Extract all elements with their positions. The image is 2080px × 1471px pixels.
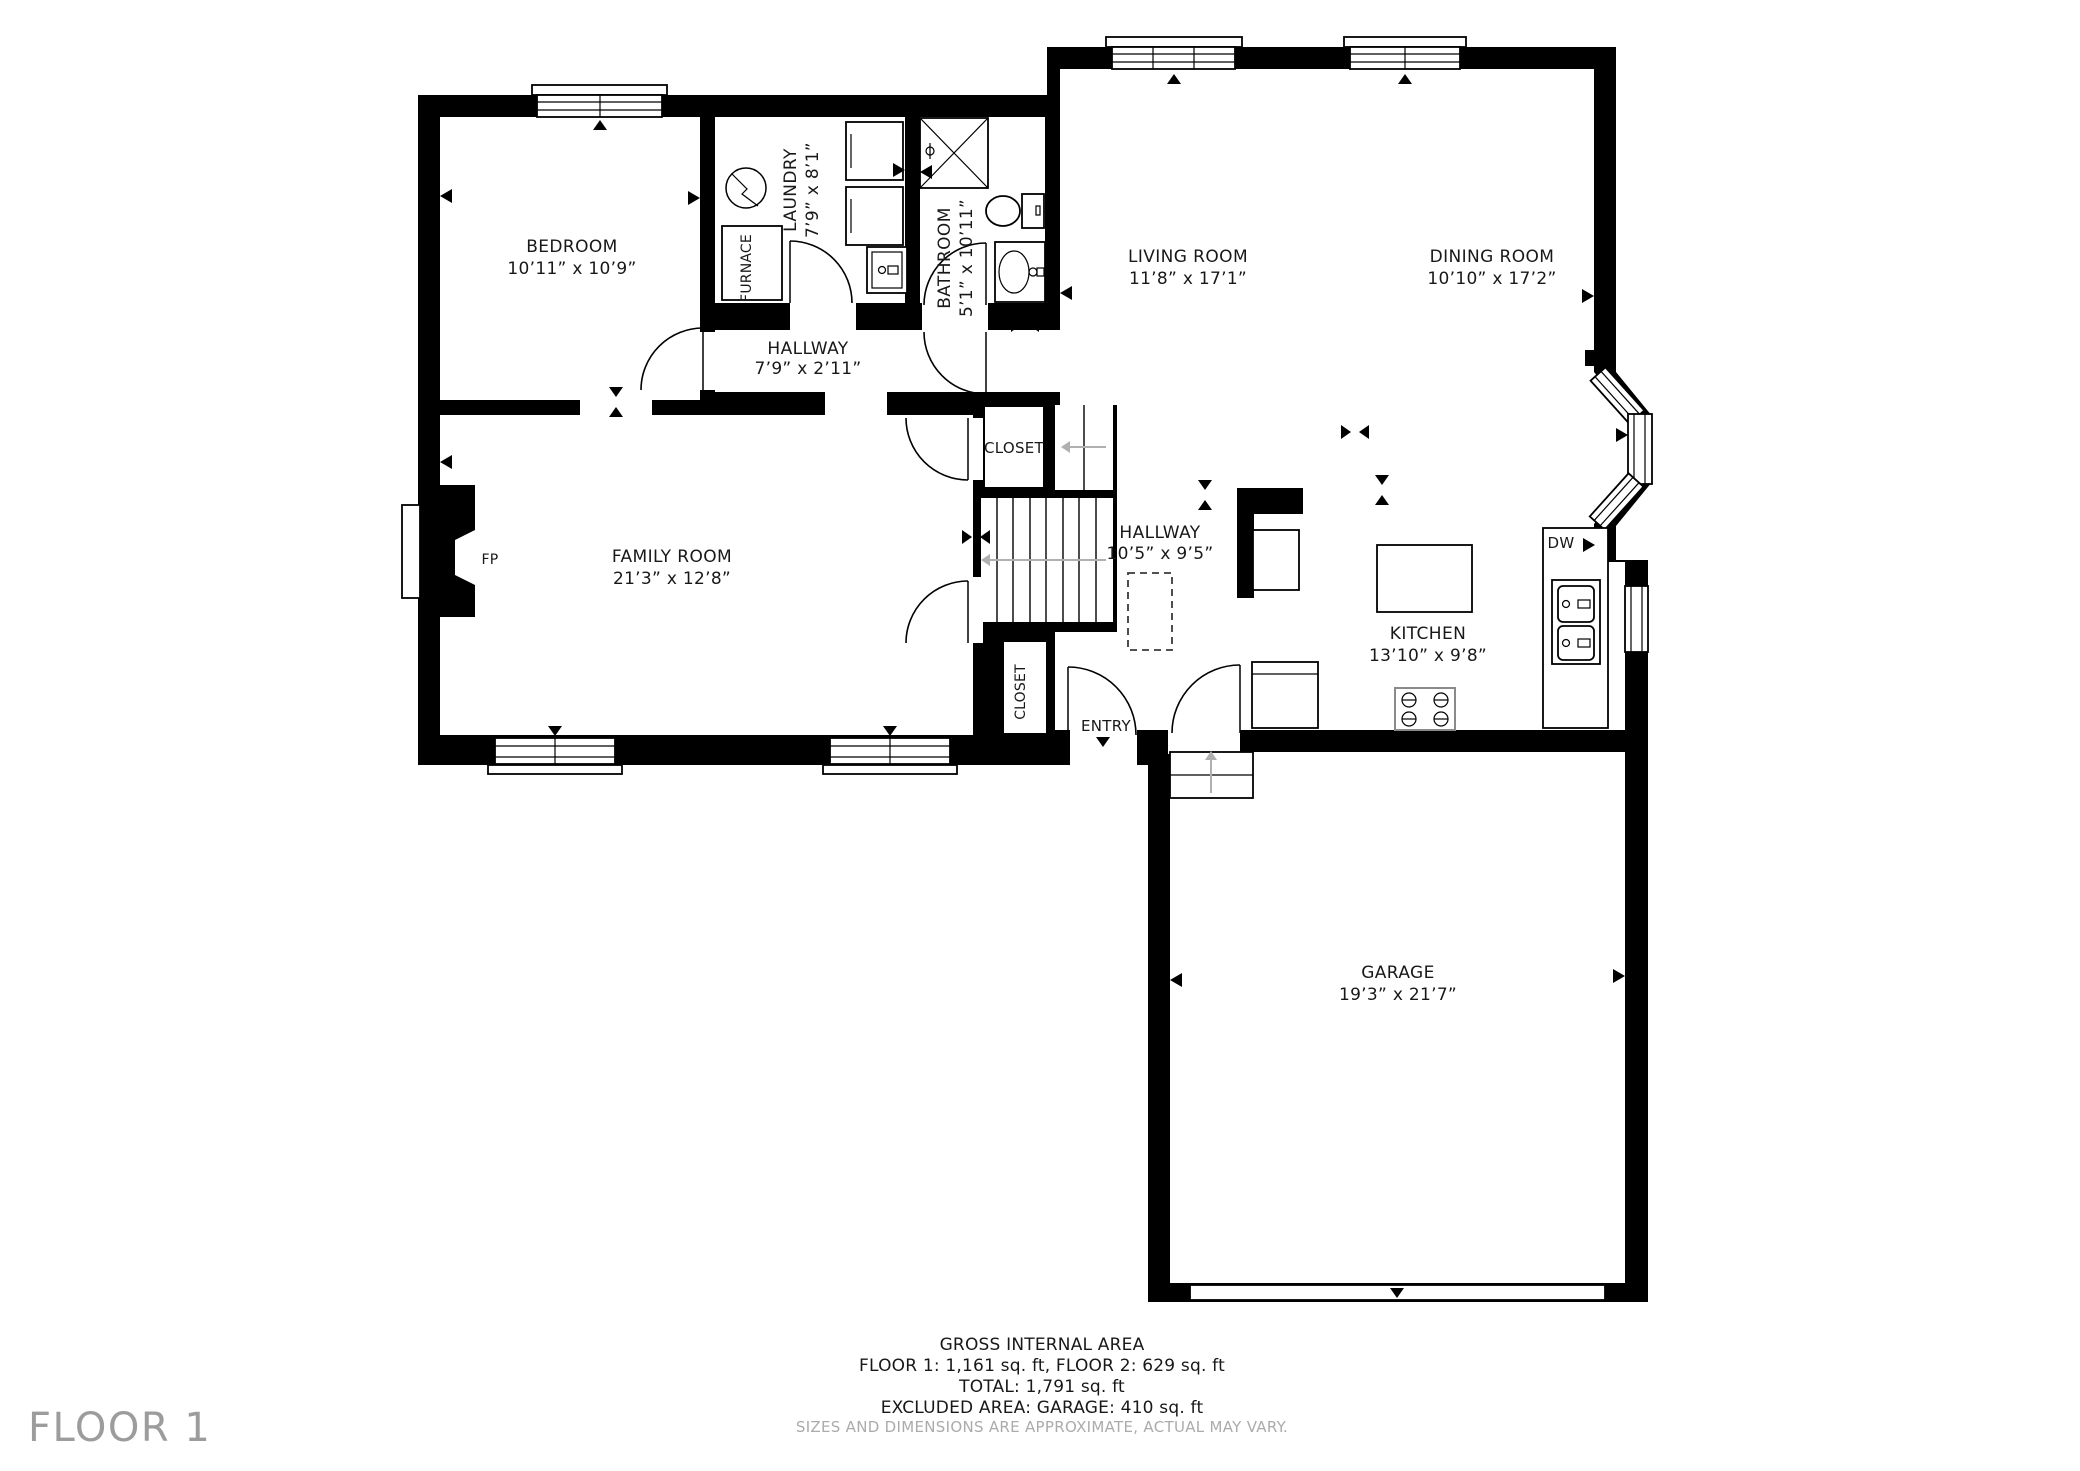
garage-dims: 19’3” x 21’7” (1339, 985, 1457, 1005)
closet-upper-label: CLOSET (984, 439, 1045, 457)
bathroom-dims: 5’1” x 10’11” (957, 199, 977, 317)
dishwasher-label: DW (1548, 534, 1575, 552)
footer-disclaimer: SIZES AND DIMENSIONS ARE APPROXIMATE, AC… (796, 1418, 1288, 1436)
sink-basin (1558, 586, 1594, 622)
laundry-sink (867, 247, 907, 293)
kitchen-island (1377, 545, 1472, 612)
footer-excluded: EXCLUDED AREA: GARAGE: 410 sq. ft (881, 1398, 1204, 1418)
bedroom-dims: 10’11” x 10’9” (507, 259, 636, 279)
pantry-wall (1237, 488, 1303, 598)
family-room-label: FAMILY ROOM (612, 547, 732, 567)
kitchen-dims: 13’10” x 9’8” (1369, 646, 1487, 666)
bathroom-sink (995, 242, 1045, 302)
hallway-small-dims: 7’9” x 2’11” (755, 359, 862, 379)
kitchen-label: KITCHEN (1390, 624, 1466, 644)
footer-floors: FLOOR 1: 1,161 sq. ft, FLOOR 2: 629 sq. … (859, 1356, 1225, 1376)
kitchen-counter (1543, 528, 1608, 728)
footer-title: GROSS INTERNAL AREA (940, 1335, 1145, 1355)
floor-title: FLOOR 1 (28, 1405, 211, 1451)
footer-total: TOTAL: 1,791 sq. ft (958, 1377, 1125, 1397)
hallway-main-dims: 10’5” x 9’5” (1107, 544, 1214, 564)
laundry-dims: 7’9” x 8’1” (803, 142, 823, 238)
entry-label: ENTRY (1081, 717, 1132, 735)
bathroom-label: BATHROOM (935, 207, 955, 309)
dining-room-label: DINING ROOM (1430, 247, 1555, 267)
dryer (846, 187, 903, 245)
footer: GROSS INTERNAL AREA FLOOR 1: 1,161 sq. f… (796, 1335, 1288, 1436)
living-room-dims: 11’8” x 17’1” (1129, 269, 1247, 289)
stove (1395, 688, 1455, 730)
closet-lower-label: CLOSET (1013, 664, 1029, 720)
refrigerator (1252, 662, 1318, 728)
fireplace-label: FP (482, 552, 499, 568)
bay-notch (1585, 350, 1600, 366)
fireplace (402, 485, 475, 617)
hallway-main-label: HALLWAY (1119, 523, 1200, 543)
family-room-dims: 21’3” x 12’8” (613, 569, 731, 589)
floor-plan-drawing: BEDROOM 10’11” x 10’9” LAUNDRY 7’9” x 8’… (0, 0, 2080, 1471)
hallway-small-label: HALLWAY (767, 339, 848, 359)
floor-plan-page: BEDROOM 10’11” x 10’9” LAUNDRY 7’9” x 8’… (0, 0, 2080, 1471)
sink-basin (1558, 626, 1594, 660)
furnace-label: FURNACE (739, 234, 755, 302)
garage-label: GARAGE (1361, 963, 1435, 983)
dining-room-dims: 10’10” x 17’2” (1427, 269, 1556, 289)
living-room-label: LIVING ROOM (1128, 247, 1248, 267)
laundry-label: LAUNDRY (781, 148, 801, 232)
window-sill (532, 85, 667, 95)
bedroom-label: BEDROOM (526, 237, 618, 257)
